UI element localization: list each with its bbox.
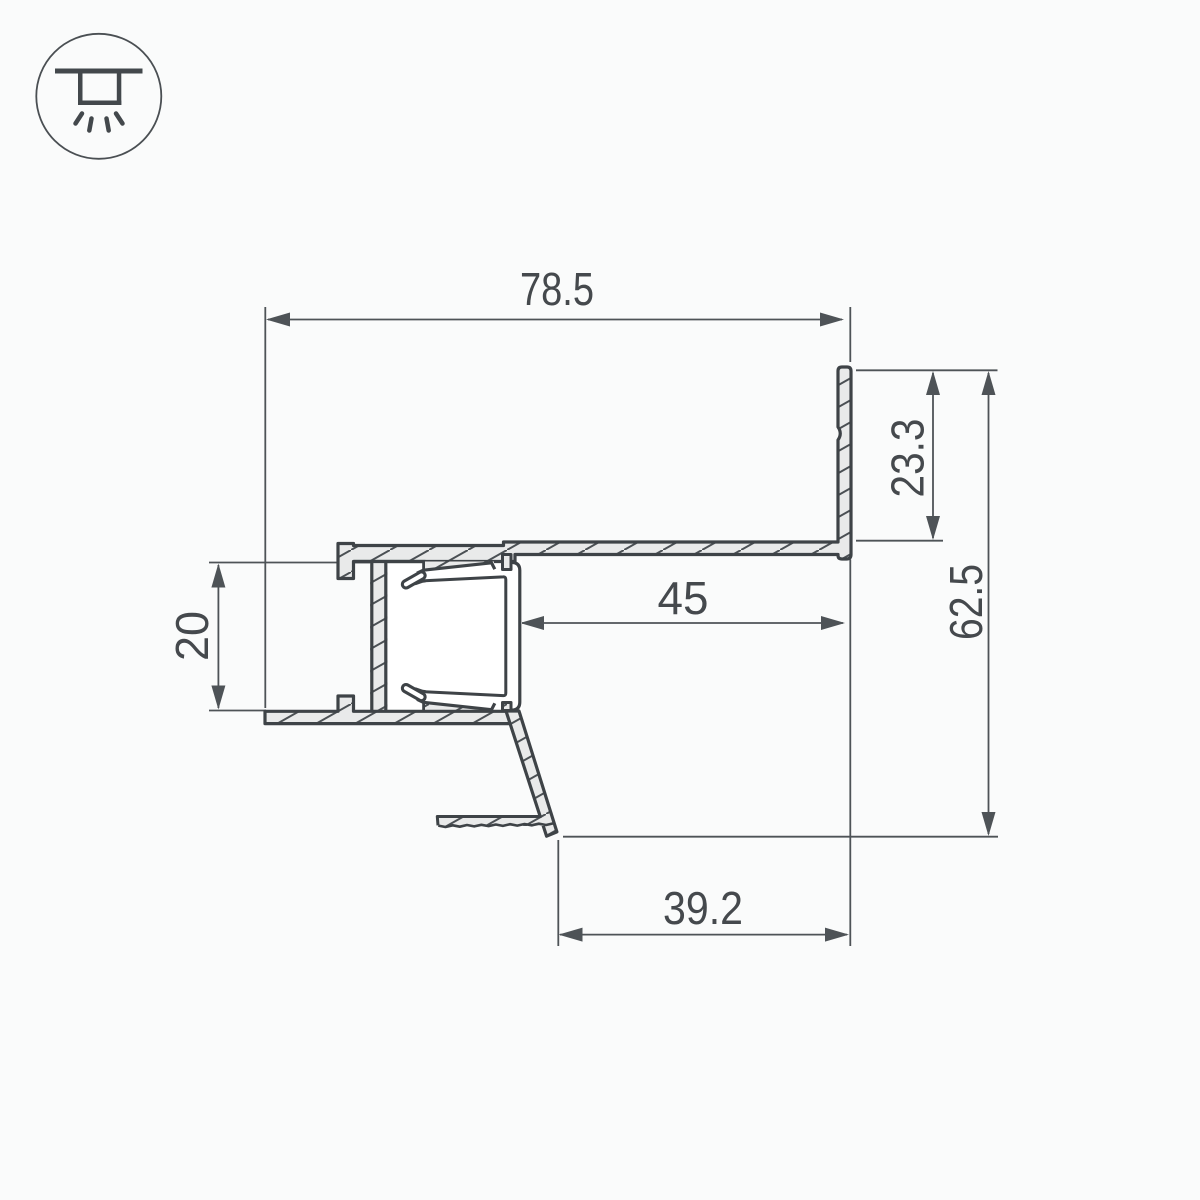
svg-text:45: 45 <box>658 572 709 624</box>
svg-text:62.5: 62.5 <box>940 564 992 640</box>
svg-text:23.3: 23.3 <box>882 419 934 498</box>
svg-text:78.5: 78.5 <box>520 263 594 315</box>
svg-text:39.2: 39.2 <box>663 882 743 934</box>
svg-text:20: 20 <box>166 611 218 661</box>
